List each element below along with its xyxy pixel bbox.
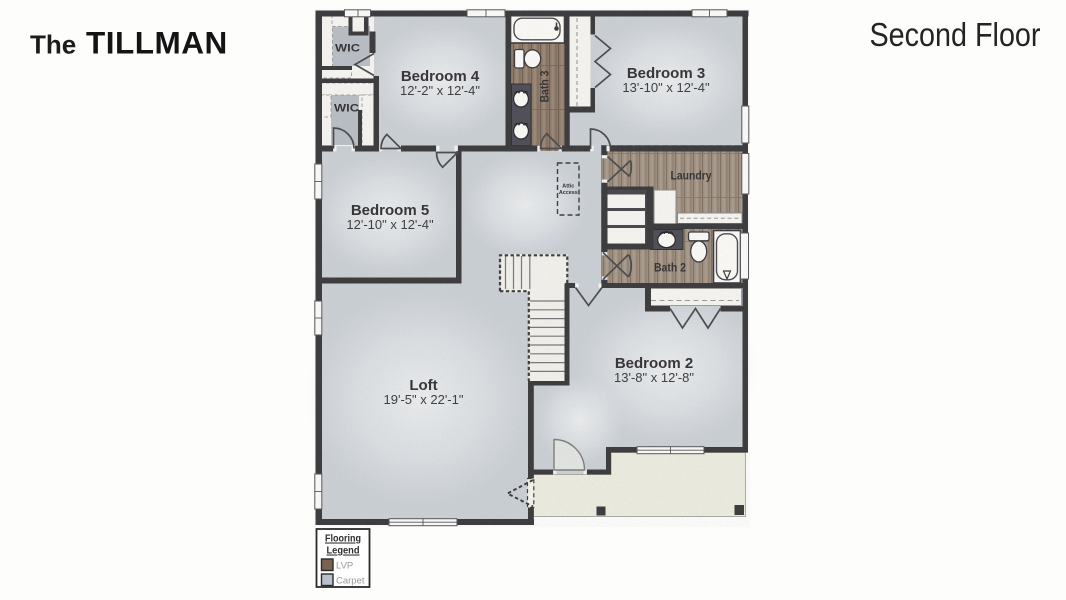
svg-text:Legend: Legend: [327, 545, 360, 557]
svg-text:The: The: [30, 30, 76, 60]
svg-text:Second Floor: Second Floor: [870, 17, 1041, 54]
svg-text:TILLMAN: TILLMAN: [86, 25, 228, 61]
svg-text:Flooring: Flooring: [325, 533, 361, 545]
svg-text:LVP: LVP: [336, 561, 353, 572]
svg-text:Carpet: Carpet: [336, 576, 365, 587]
